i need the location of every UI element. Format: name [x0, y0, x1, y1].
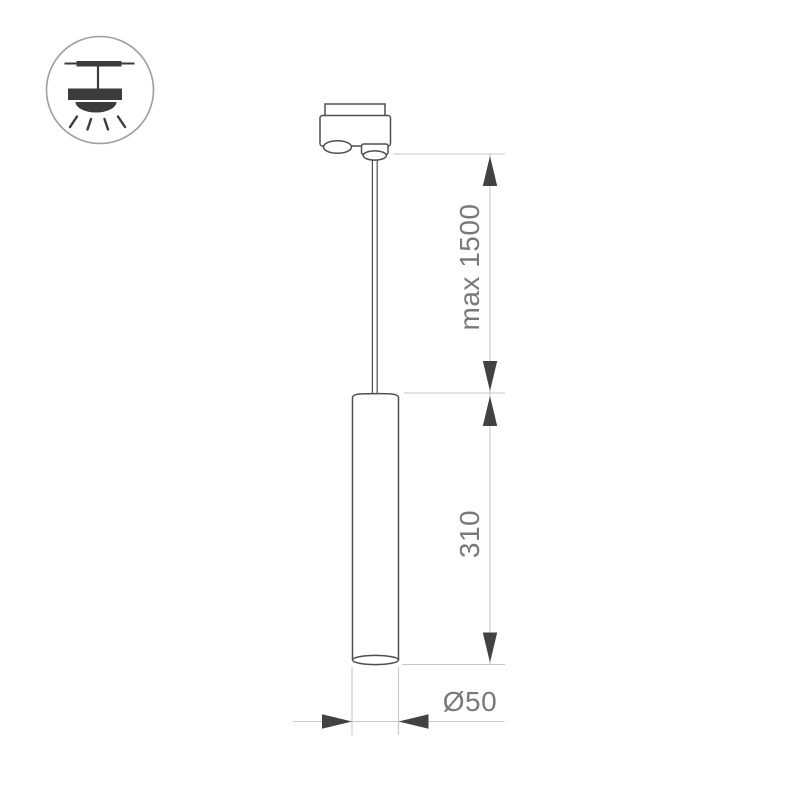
icon-lamp-dome: [76, 102, 117, 113]
lamp-body-cylinder: [353, 394, 399, 665]
dimension-label-body-height: 310: [456, 510, 484, 558]
icon-light-rays: [70, 117, 125, 130]
arrow-down-body-bottom: [483, 633, 497, 663]
arrow-left-diameter-right: [399, 714, 429, 728]
arrow-up-body-top: [483, 396, 497, 426]
suspension-wire: [372, 160, 377, 394]
arrow-up-suspension-top: [483, 156, 497, 186]
cord-grip-nut: [363, 151, 386, 160]
drawing-layer: [0, 0, 800, 800]
cylinder-sides: [353, 394, 399, 660]
dimension-label-suspension: max 1500: [456, 204, 484, 331]
technical-drawing-canvas: max 1500 310 Ø50: [0, 0, 800, 800]
track-connector-top: [325, 104, 385, 116]
arrow-right-diameter-left: [322, 714, 352, 728]
dimension-label-diameter: Ø50: [443, 688, 497, 716]
arrow-down-suspension-bottom: [483, 361, 497, 391]
icon-mount-bar: [77, 61, 122, 67]
cylinder-bottom-cap: [353, 655, 399, 664]
adapter-knob: [324, 141, 352, 154]
icon-lamp-body: [68, 89, 122, 101]
track-adapter: [320, 104, 391, 160]
pendant-lamp-icon: [47, 37, 154, 144]
